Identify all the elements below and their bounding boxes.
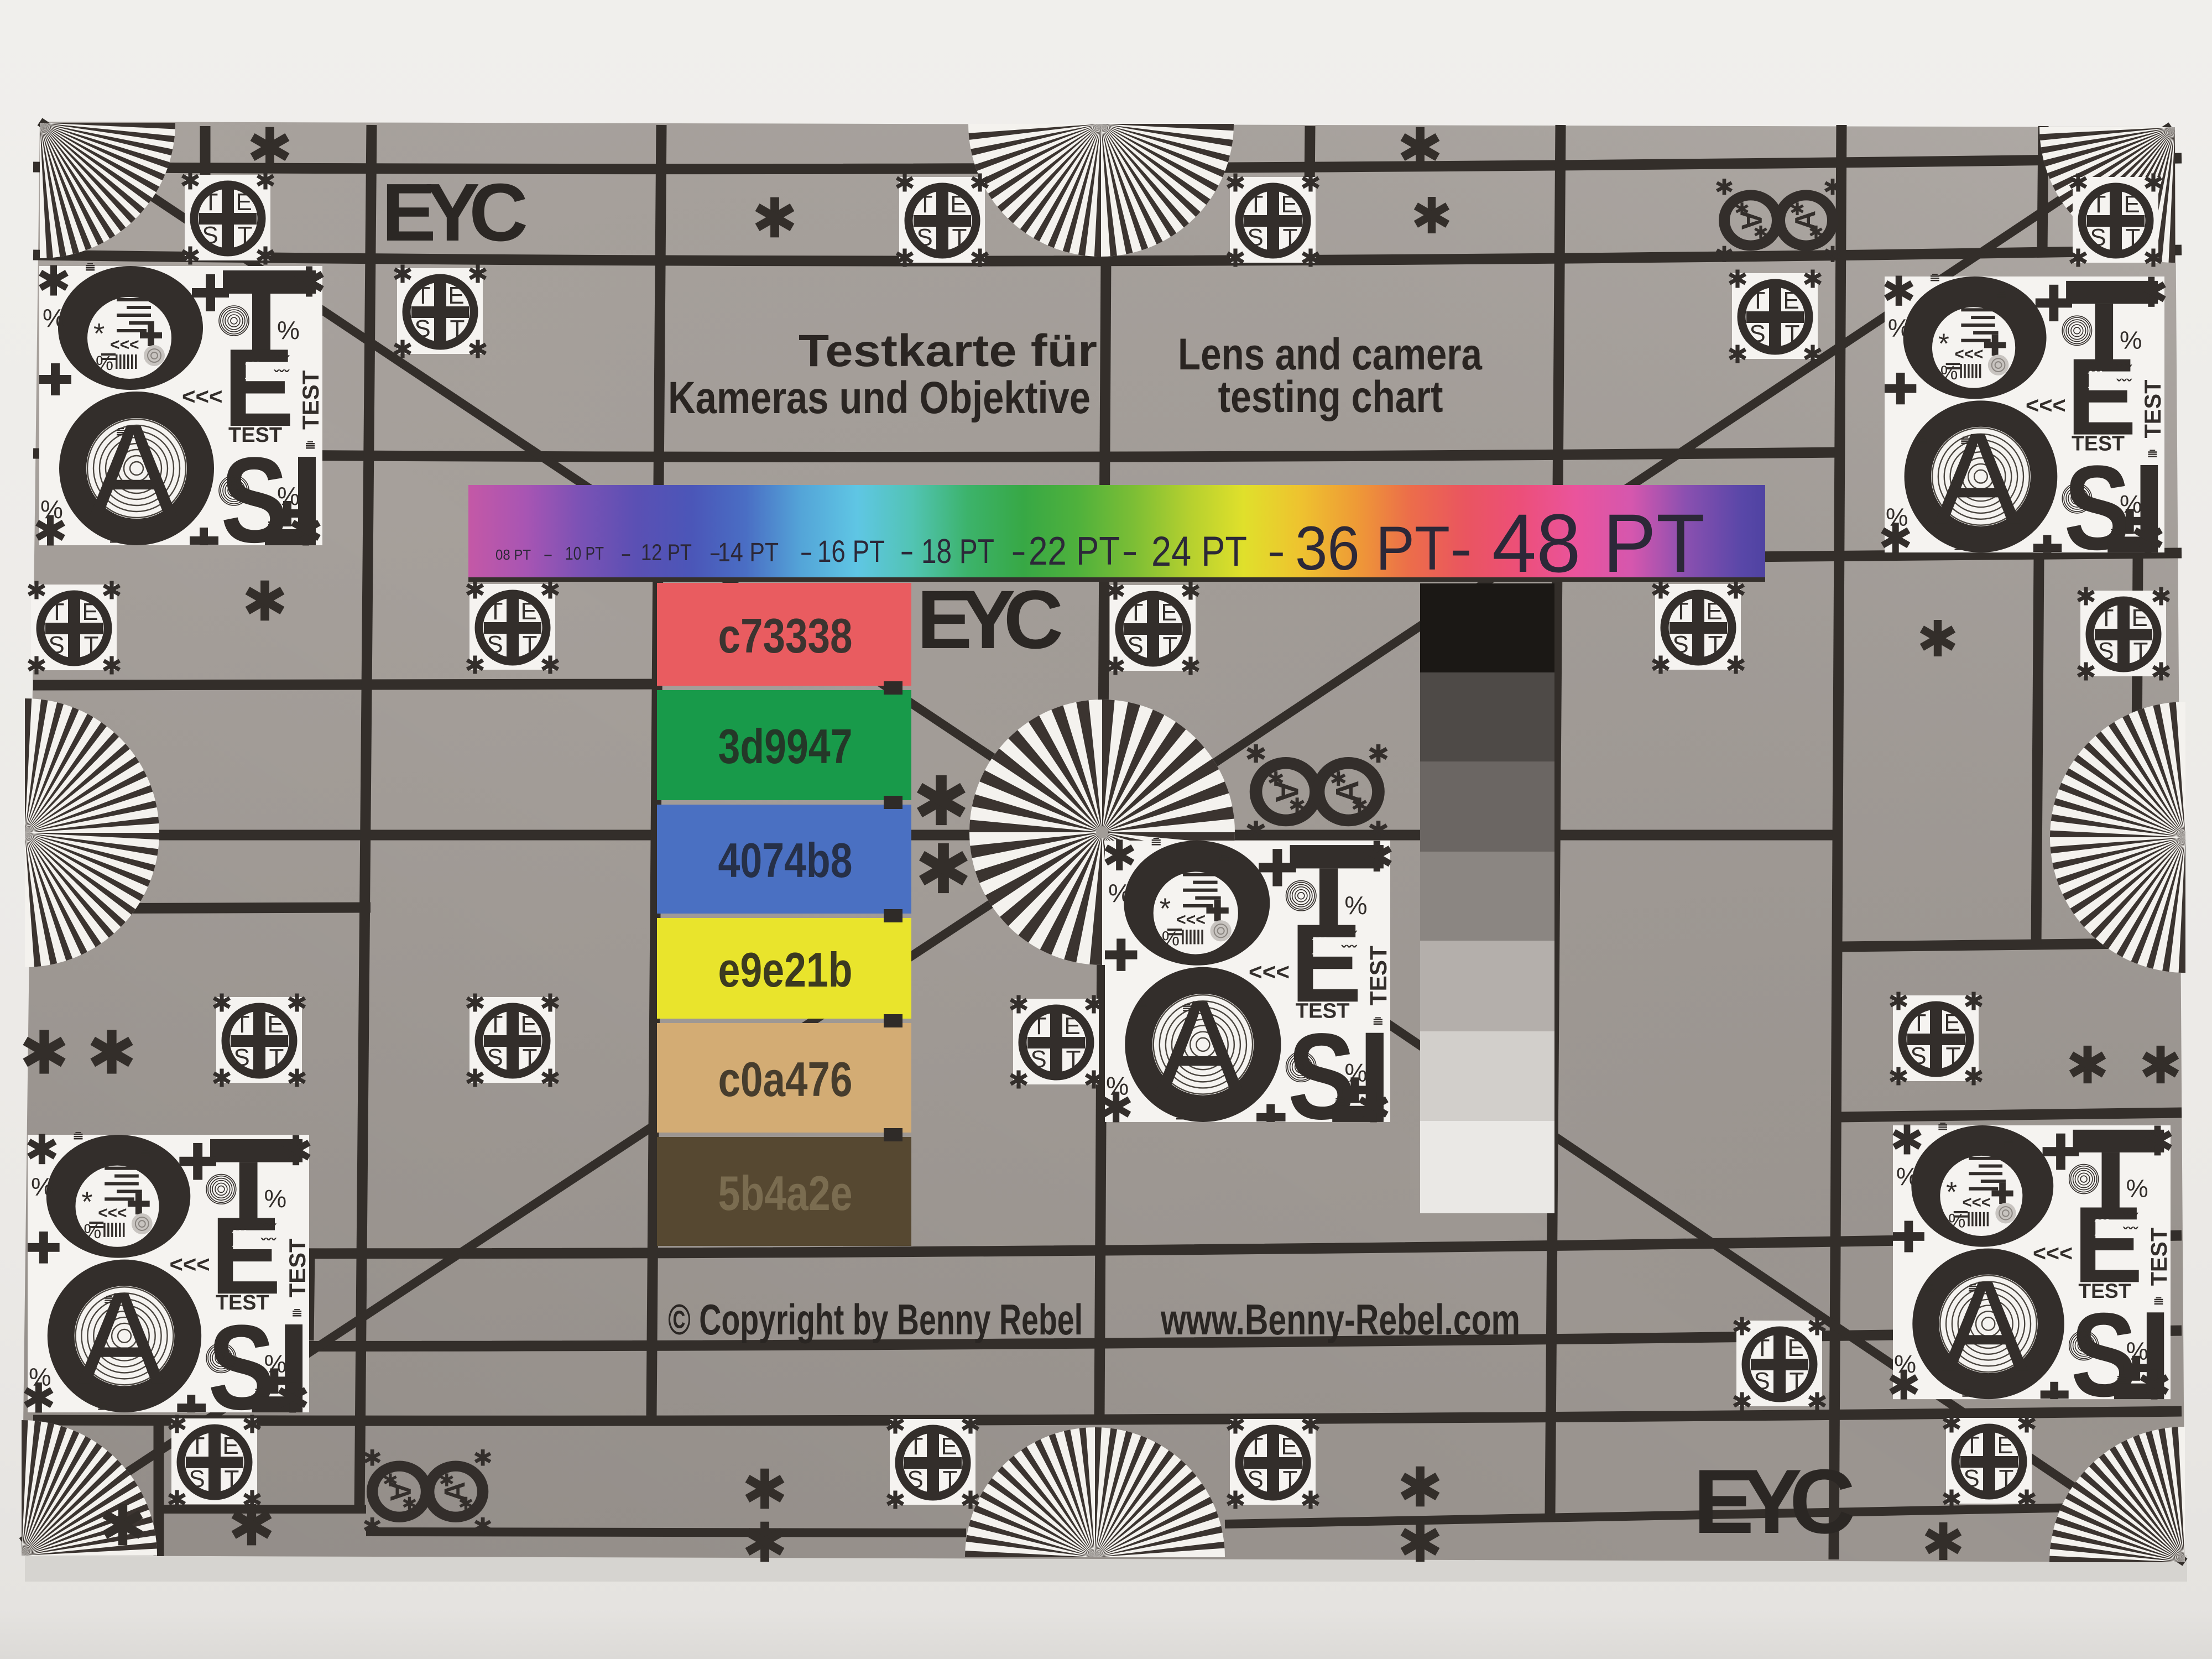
svg-text:Testkarte für: Testkarte für: [799, 326, 1097, 376]
svg-text:3d9947: 3d9947: [718, 719, 853, 774]
svg-text:48 PT: 48 PT: [1492, 497, 1705, 589]
svg-text:-: -: [900, 533, 914, 569]
svg-text:c0a476: c0a476: [718, 1052, 853, 1107]
svg-text:Kameras und Objektive: Kameras und Objektive: [668, 373, 1091, 423]
svg-text:-: -: [620, 542, 632, 565]
svg-text:© Copyright by Benny Rebel: © Copyright by Benny Rebel: [668, 1295, 1083, 1344]
svg-text:-: -: [800, 536, 813, 567]
svg-text:-: -: [1011, 531, 1026, 571]
svg-text:12 PT: 12 PT: [641, 539, 692, 565]
svg-text:testing chart: testing chart: [1218, 372, 1443, 422]
svg-text:EYC: EYC: [382, 167, 528, 258]
svg-text:10 PT: 10 PT: [565, 543, 604, 564]
svg-text:www.Benny-Rebel.com: www.Benny-Rebel.com: [1160, 1295, 1520, 1344]
svg-text:-: -: [1450, 514, 1472, 583]
svg-text:08 PT: 08 PT: [495, 546, 531, 563]
svg-text:24 PT: 24 PT: [1151, 528, 1247, 575]
svg-text:16 PT: 16 PT: [817, 534, 885, 568]
svg-text:36 PT: 36 PT: [1295, 514, 1450, 583]
svg-text:22 PT: 22 PT: [1029, 529, 1120, 573]
svg-text:-: -: [1121, 528, 1138, 573]
svg-text:EYC: EYC: [917, 573, 1063, 666]
svg-text:14 PT: 14 PT: [718, 538, 779, 567]
svg-text:4074b8: 4074b8: [718, 833, 853, 888]
svg-text:-: -: [543, 545, 553, 564]
svg-text:e9e21b: e9e21b: [718, 942, 853, 997]
svg-text:18 PT: 18 PT: [921, 533, 994, 571]
svg-text:5b4a2e: 5b4a2e: [718, 1166, 853, 1220]
svg-text:c73338: c73338: [718, 608, 853, 663]
svg-text:-: -: [1267, 526, 1285, 575]
svg-text:EYC: EYC: [1693, 1451, 1855, 1552]
